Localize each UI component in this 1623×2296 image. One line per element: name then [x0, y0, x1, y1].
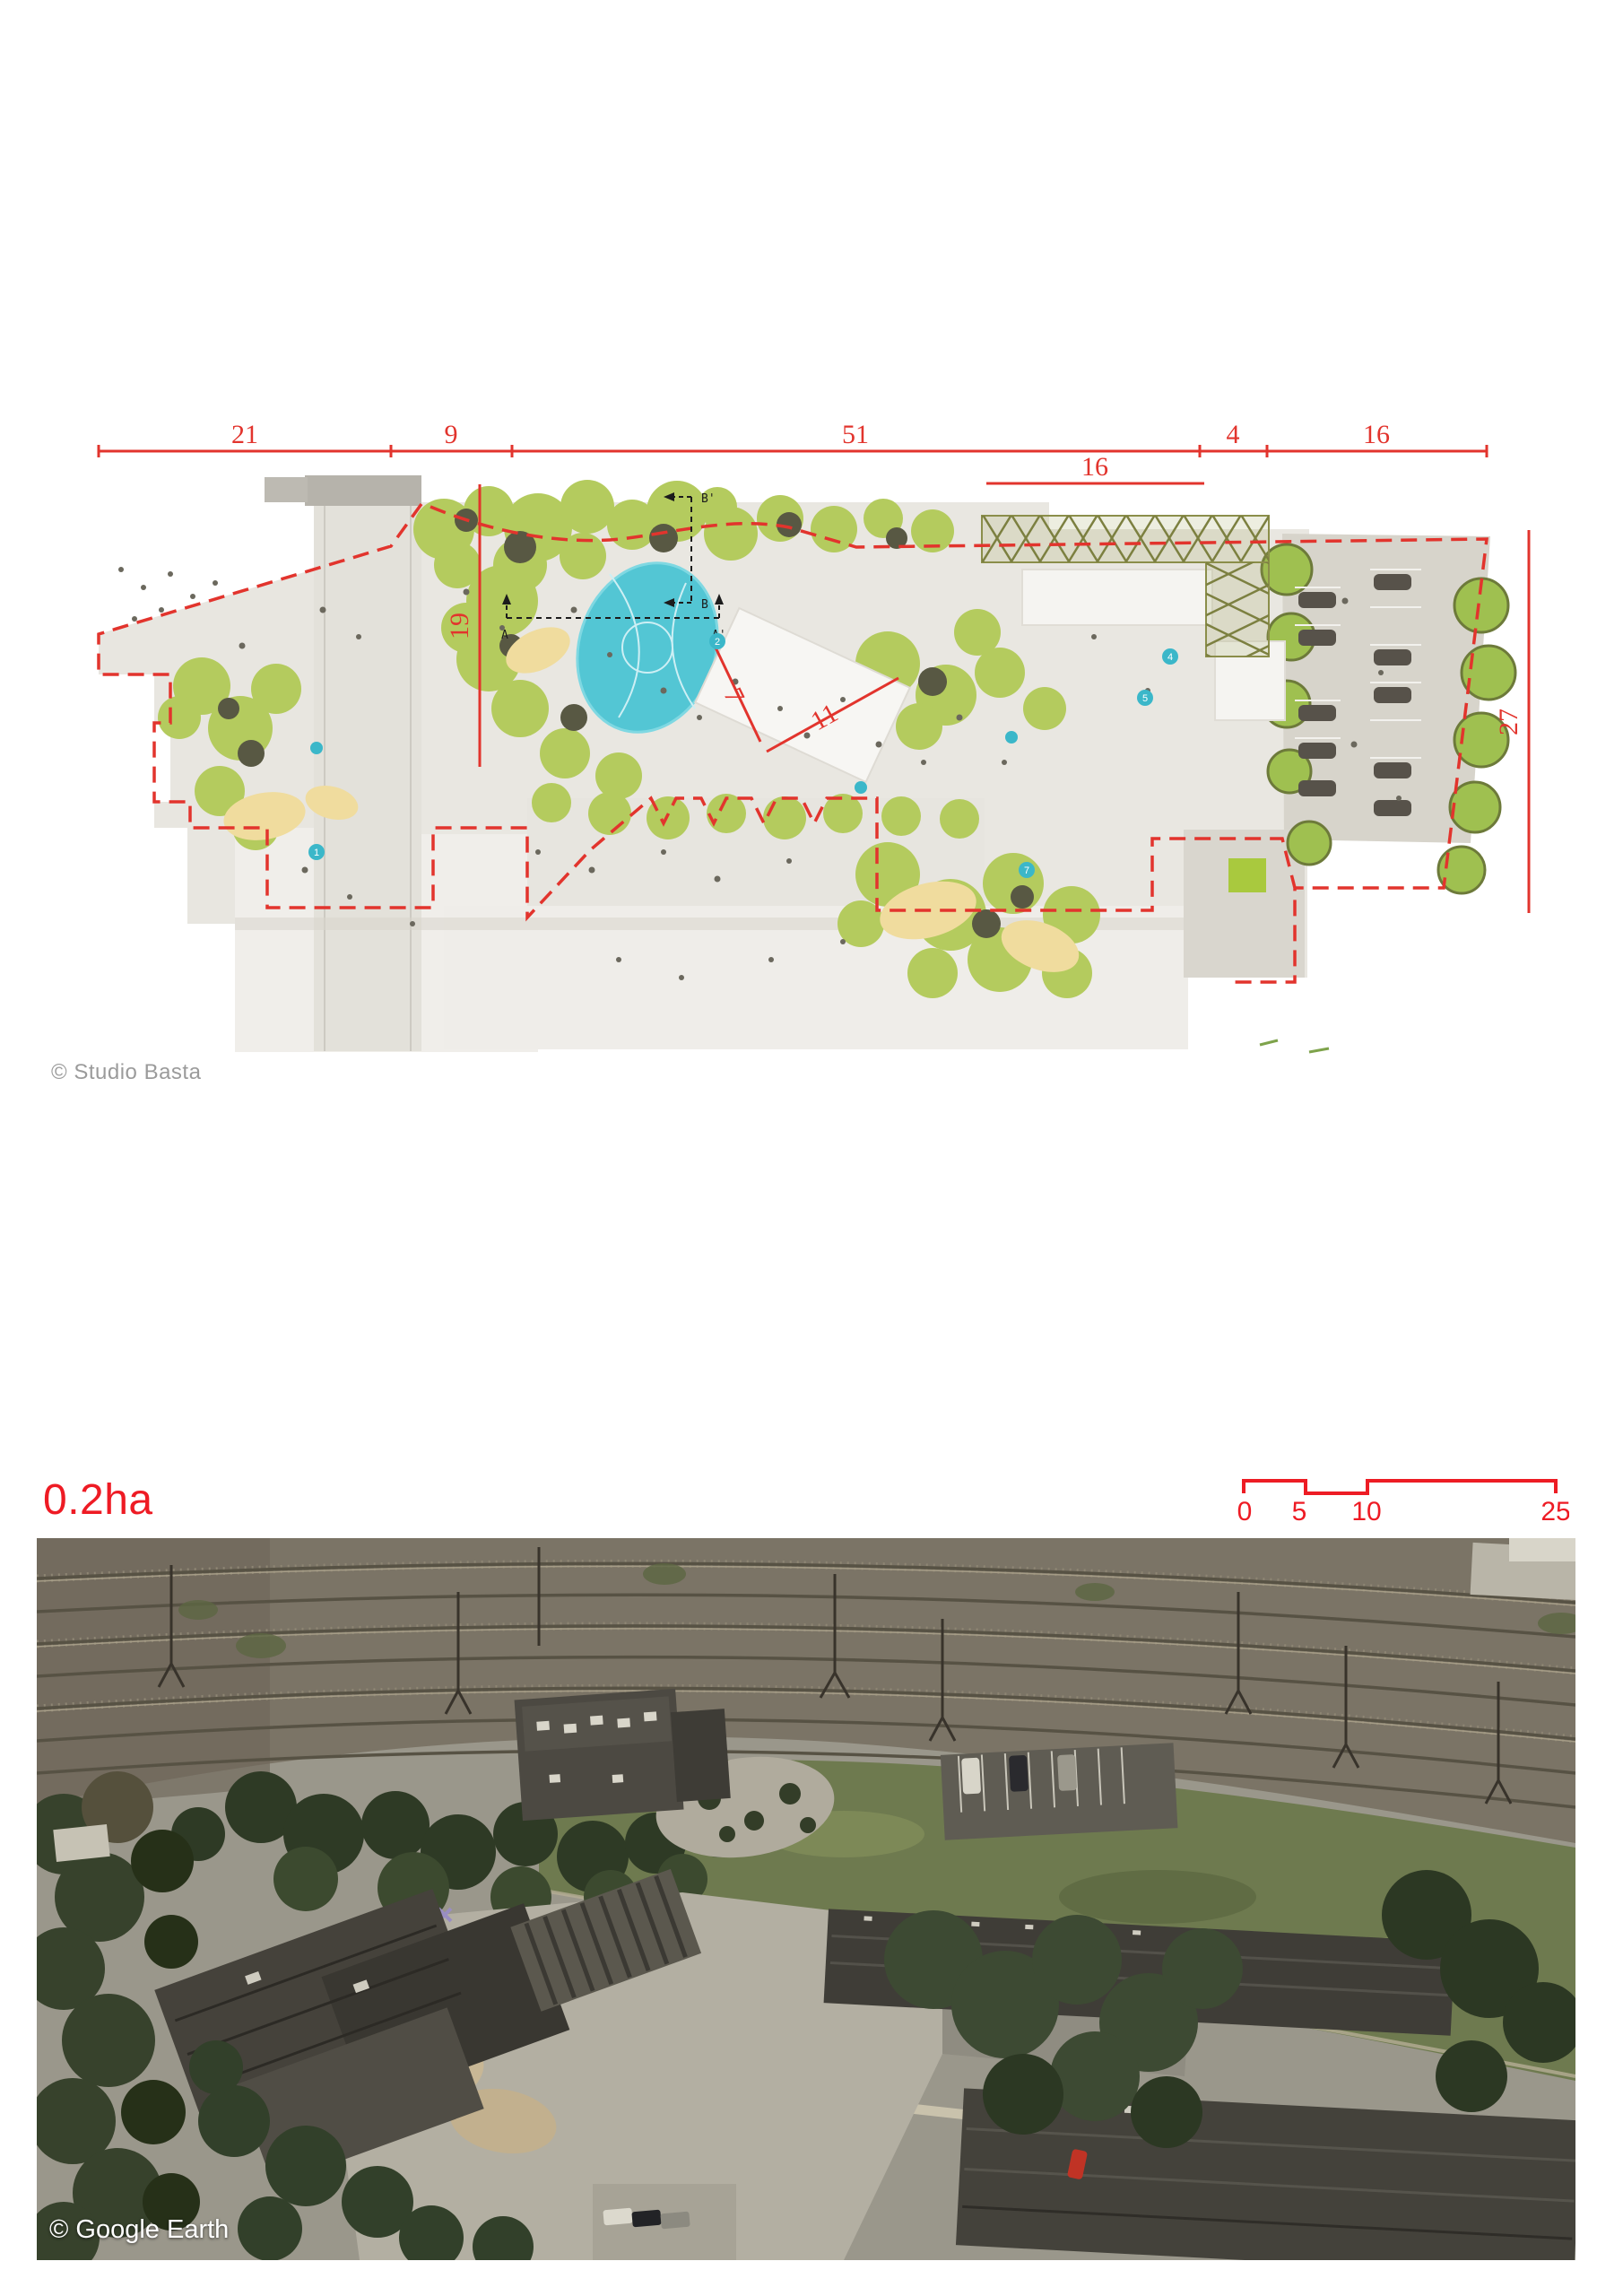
dim-16: 16 [1363, 422, 1390, 449]
dim-4: 4 [1227, 422, 1240, 449]
masterplan-drawing: 21 9 51 4 16 16 19 27 7 11 B' B A A' 1 2… [36, 422, 1542, 1058]
poi-2: 2 [715, 637, 720, 648]
building-white-right [1509, 1538, 1575, 1561]
scale-0: 0 [1237, 1497, 1252, 1525]
dim-51: 51 [842, 422, 869, 449]
scale-10: 10 [1351, 1497, 1381, 1525]
plan-credit: © Studio Basta [51, 1060, 201, 1085]
poi-7: 7 [1024, 865, 1029, 876]
lawn-square [1228, 858, 1266, 892]
shed [53, 1824, 109, 1862]
building-roof-edge [305, 475, 421, 506]
dim-19: 19 [445, 613, 474, 639]
poi-4: 4 [1167, 652, 1173, 663]
dim-9: 9 [445, 422, 458, 449]
dim-27: 27 [1494, 709, 1523, 735]
area-label: 0.2ha [43, 1475, 153, 1525]
aerial-photo [37, 1538, 1575, 2260]
scale-bar-line [1244, 1481, 1556, 1493]
grass-marks [1260, 1040, 1329, 1052]
section-label-b: B [701, 598, 708, 612]
section-label-b-prime: B' [701, 492, 716, 506]
dim-21: 21 [231, 422, 258, 449]
dim-16-canopy: 16 [1081, 452, 1108, 482]
scale-bar: 0 5 10 25 [1237, 1469, 1569, 1525]
aerial-credit: © Google Earth [49, 2215, 229, 2245]
section-label-a: A [501, 629, 508, 642]
poi-1: 1 [314, 848, 319, 858]
poi-5: 5 [1142, 693, 1148, 704]
scale-5: 5 [1292, 1497, 1307, 1525]
building-slab-north [1022, 570, 1212, 625]
small-car-lot [593, 2184, 736, 2260]
aerial-parking [941, 1743, 1178, 1839]
scale-25: 25 [1541, 1497, 1569, 1525]
